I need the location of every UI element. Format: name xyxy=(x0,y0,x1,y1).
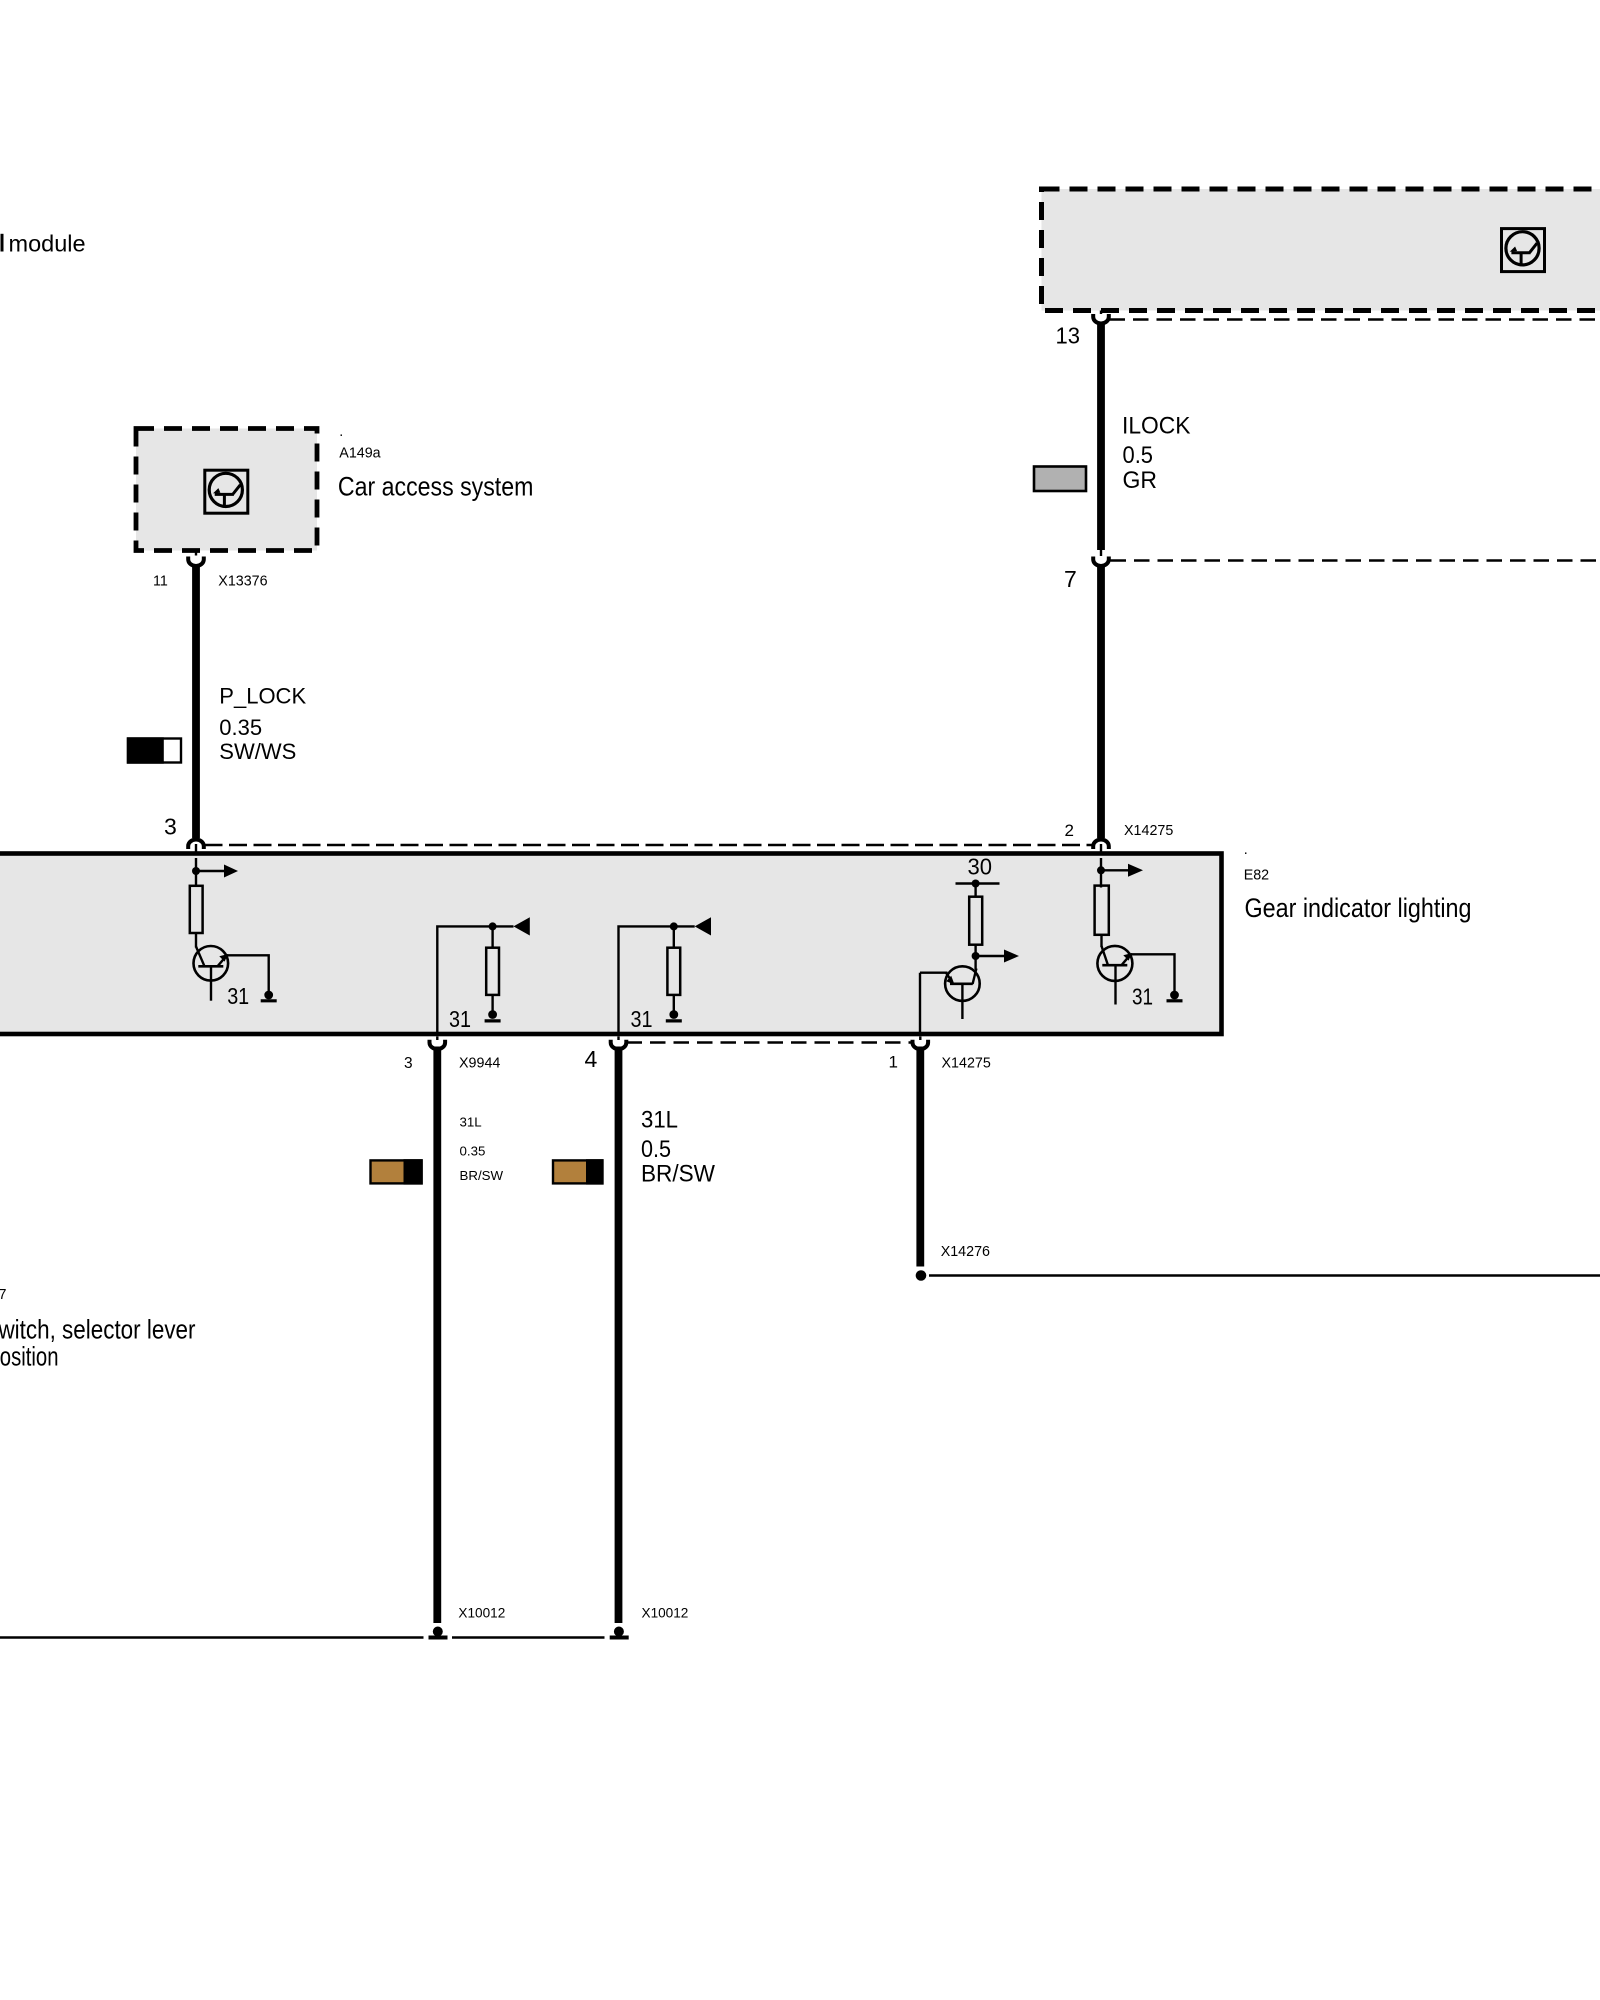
svg-text:E82: E82 xyxy=(1244,868,1269,884)
svg-text:0.35: 0.35 xyxy=(460,1144,486,1159)
svg-text:X10012: X10012 xyxy=(642,1606,689,1621)
svg-text:X14276: X14276 xyxy=(941,1244,990,1260)
svg-text:BR/SW: BR/SW xyxy=(460,1168,504,1183)
svg-text:GR: GR xyxy=(1123,467,1158,494)
svg-text:7: 7 xyxy=(1064,566,1077,592)
svg-text:X14275: X14275 xyxy=(1124,823,1173,839)
svg-text:31: 31 xyxy=(449,1006,471,1032)
svg-text:31: 31 xyxy=(631,1006,653,1032)
svg-text:30: 30 xyxy=(968,853,993,879)
svg-text:BR/SW: BR/SW xyxy=(641,1160,715,1187)
svg-text:A149a: A149a xyxy=(339,446,380,462)
svg-text:4: 4 xyxy=(585,1046,598,1072)
svg-text:X10012: X10012 xyxy=(458,1606,505,1621)
svg-text:X13376: X13376 xyxy=(218,574,267,590)
svg-text:SW/WS: SW/WS xyxy=(219,739,296,764)
svg-text:7: 7 xyxy=(0,1287,7,1303)
svg-text:.: . xyxy=(339,424,343,440)
svg-text:Car access system: Car access system xyxy=(338,471,534,501)
svg-text:31: 31 xyxy=(1132,984,1153,1010)
svg-text:3: 3 xyxy=(404,1055,413,1072)
svg-text:Switch, selector lever: Switch, selector lever xyxy=(0,1315,196,1345)
svg-text:module: module xyxy=(9,231,86,257)
svg-text:31: 31 xyxy=(227,983,249,1009)
svg-text:11: 11 xyxy=(153,574,168,590)
svg-text:1: 1 xyxy=(889,1053,898,1072)
svg-text:X14275: X14275 xyxy=(942,1056,991,1072)
svg-text:3: 3 xyxy=(164,814,177,840)
svg-text:31L: 31L xyxy=(641,1107,678,1134)
svg-text:P_LOCK: P_LOCK xyxy=(219,684,306,709)
svg-text:13: 13 xyxy=(1056,323,1081,349)
svg-text:ILOCK: ILOCK xyxy=(1122,413,1191,440)
svg-text:0.5: 0.5 xyxy=(641,1136,671,1163)
svg-text:0.35: 0.35 xyxy=(219,715,262,740)
svg-text:position: position xyxy=(0,1342,59,1372)
svg-text:.: . xyxy=(1244,842,1248,858)
svg-text:31L: 31L xyxy=(460,1114,482,1129)
svg-text:Gear indicator lighting: Gear indicator lighting xyxy=(1245,893,1472,923)
svg-text:2: 2 xyxy=(1065,821,1074,840)
svg-text:0.5: 0.5 xyxy=(1123,442,1154,469)
svg-text:X9944: X9944 xyxy=(459,1056,500,1072)
